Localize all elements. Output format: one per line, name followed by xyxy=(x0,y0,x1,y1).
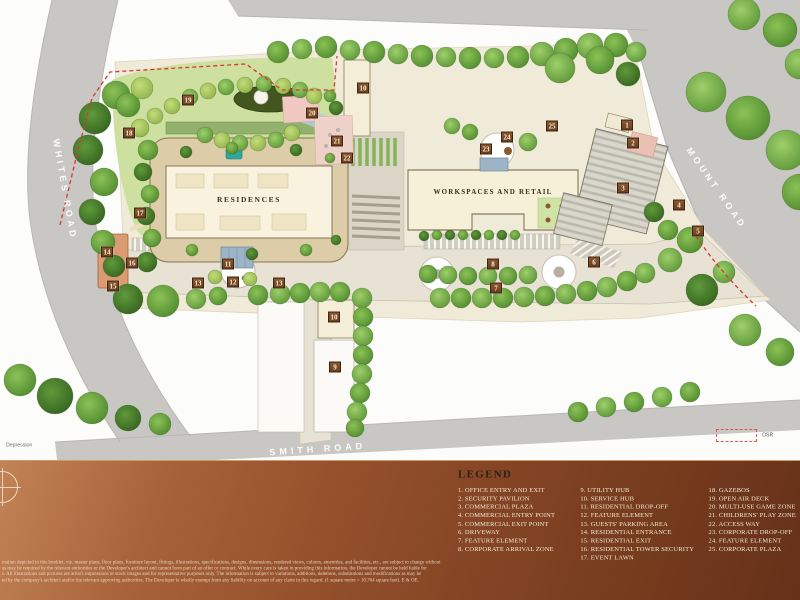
map-marker-13: 13 xyxy=(273,278,285,289)
tree-icon xyxy=(484,48,504,68)
depression-label: Depression xyxy=(6,442,32,448)
tree-icon xyxy=(90,168,118,196)
tree-icon xyxy=(596,397,616,417)
map-marker-16: 16 xyxy=(126,258,138,269)
map-marker-14: 14 xyxy=(101,247,113,258)
tree-icon xyxy=(586,46,614,74)
tree-icon xyxy=(284,125,300,141)
tree-icon xyxy=(726,96,770,140)
tree-icon xyxy=(115,405,141,431)
map-marker-10: 10 xyxy=(357,83,369,94)
tree-icon xyxy=(680,382,700,402)
tree-icon xyxy=(419,231,429,241)
map-marker-23: 23 xyxy=(480,144,492,155)
legend-item: 8. CORPORATE ARRIVAL ZONE xyxy=(458,545,580,553)
tree-icon xyxy=(37,378,73,414)
legend-column-3: 18. GAZEBOS19. OPEN AIR DECK20. MULTI-US… xyxy=(709,486,797,562)
legend-item: 16. RESIDENTIAL TOWER SECURITY xyxy=(580,545,708,553)
map-marker-2: 2 xyxy=(627,138,639,149)
osr-label: OSR xyxy=(762,432,773,438)
tree-icon xyxy=(340,40,360,60)
tree-icon xyxy=(658,248,682,272)
tree-icon xyxy=(79,199,105,225)
tree-icon xyxy=(444,118,460,134)
map-marker-11: 11 xyxy=(222,259,234,270)
tree-icon xyxy=(519,266,537,284)
legend-column-2: 9. UTILITY HUB10. SERVICE HUB11. RESIDEN… xyxy=(580,486,708,562)
legend-item: 11. RESIDENTIAL DROP-OFF xyxy=(580,503,708,511)
tree-icon xyxy=(310,282,330,302)
tree-icon xyxy=(141,185,159,203)
tree-icon xyxy=(149,413,171,435)
tree-icon xyxy=(430,288,450,308)
tree-icon xyxy=(324,90,336,102)
legend-item: 12. FEATURE ELEMENT xyxy=(580,512,708,520)
tree-icon xyxy=(218,79,234,95)
tree-icon xyxy=(432,230,442,240)
tree-icon xyxy=(658,220,678,240)
map-marker-22: 22 xyxy=(341,153,353,164)
master-plan-map: WHITES ROAD MOUNT ROAD SMITH ROAD RESIDE… xyxy=(0,0,800,460)
tree-icon xyxy=(617,271,637,291)
tree-icon xyxy=(462,124,478,140)
legend-item: 19. OPEN AIR DECK xyxy=(709,495,797,503)
tree-icon xyxy=(497,230,507,240)
legend-item: 9. UTILITY HUB xyxy=(580,486,708,494)
tree-icon xyxy=(729,314,761,346)
tree-icon xyxy=(226,142,238,154)
tree-icon xyxy=(535,286,555,306)
tree-icon xyxy=(197,127,213,143)
map-marker-20: 20 xyxy=(306,108,318,119)
tree-icon xyxy=(411,45,433,67)
tree-icon xyxy=(556,284,576,304)
tree-icon xyxy=(243,272,257,286)
tree-icon xyxy=(290,283,310,303)
tree-icon xyxy=(350,383,370,403)
legend-item: 5. COMMERCIAL EXIT POINT xyxy=(458,520,580,528)
tree-icon xyxy=(616,62,640,86)
tree-icon xyxy=(451,288,471,308)
tree-icon xyxy=(268,132,284,148)
map-marker-8: 8 xyxy=(487,259,499,270)
tree-icon xyxy=(325,153,335,163)
tree-icon xyxy=(577,281,597,301)
legend-item: 3. COMMERCIAL PLAZA xyxy=(458,503,580,511)
tree-icon xyxy=(514,287,534,307)
map-marker-18: 18 xyxy=(123,128,135,139)
map-marker-1: 1 xyxy=(621,120,633,131)
map-marker-15: 15 xyxy=(107,281,119,292)
tree-icon xyxy=(353,326,373,346)
tree-icon xyxy=(439,266,457,284)
tree-icon xyxy=(4,364,36,396)
tree-icon xyxy=(484,230,494,240)
legend-item: 23. CORPORATE DROP-OFF xyxy=(709,528,797,536)
map-marker-10: 10 xyxy=(328,312,340,323)
map-marker-17: 17 xyxy=(134,208,146,219)
tree-icon xyxy=(445,230,455,240)
tree-icon xyxy=(686,72,726,112)
tree-icon xyxy=(300,244,312,256)
tree-icon xyxy=(388,44,408,64)
map-marker-7: 7 xyxy=(490,283,502,294)
map-marker-21: 21 xyxy=(331,136,343,147)
tree-icon xyxy=(346,419,364,437)
legend-item: 22. ACCESS WAY xyxy=(709,520,797,528)
tree-icon xyxy=(209,287,227,305)
tree-icon xyxy=(686,274,718,306)
map-marker-5: 5 xyxy=(692,226,704,237)
legend-band: LEGEND 1. OFFICE ENTRY AND EXIT2. SECURI… xyxy=(0,460,800,600)
tree-icon xyxy=(766,338,794,366)
tree-icon xyxy=(458,230,468,240)
osr-boundary-box xyxy=(716,429,757,442)
tree-icon xyxy=(419,265,437,283)
legend-item: 6. DRIVEWAY xyxy=(458,528,580,536)
tree-icon xyxy=(545,53,575,83)
legend: LEGEND 1. OFFICE ENTRY AND EXIT2. SECURI… xyxy=(458,469,796,562)
tree-icon xyxy=(352,288,372,308)
legend-column-1: 1. OFFICE ENTRY AND EXIT2. SECURITY PAVI… xyxy=(458,486,580,562)
legend-item: 18. GAZEBOS xyxy=(709,486,797,494)
map-marker-13: 13 xyxy=(192,278,204,289)
tree-icon xyxy=(652,387,672,407)
tree-icon xyxy=(256,76,272,92)
tree-icon xyxy=(507,46,529,68)
legend-item: 10. SERVICE HUB xyxy=(580,495,708,503)
tree-icon xyxy=(267,41,289,63)
master-plan-page: WHITES ROAD MOUNT ROAD SMITH ROAD RESIDE… xyxy=(0,0,800,600)
map-marker-25: 25 xyxy=(546,121,558,132)
map-marker-3: 3 xyxy=(617,183,629,194)
tree-icon xyxy=(208,270,222,284)
map-marker-4: 4 xyxy=(673,200,685,211)
tree-icon xyxy=(186,244,198,256)
tree-icon xyxy=(164,98,180,114)
legend-item: 20. MULTI-USE GAME ZONE xyxy=(709,503,797,511)
disclaimer-text: mation depicted in this booklet, viz. ma… xyxy=(2,559,800,583)
tree-icon xyxy=(459,267,477,285)
legend-item: 21. CHILDRENS' PLAY ZONE xyxy=(709,512,797,520)
tree-icon xyxy=(186,289,206,309)
tree-icon xyxy=(237,77,253,93)
tree-icon xyxy=(76,392,108,424)
tree-icon xyxy=(315,36,337,58)
tree-icon xyxy=(290,144,302,156)
tree-icon xyxy=(138,140,158,160)
tree-icon xyxy=(644,202,664,222)
tree-icon xyxy=(134,163,152,181)
map-marker-9: 9 xyxy=(329,362,341,373)
legend-item: 1. OFFICE ENTRY AND EXIT xyxy=(458,486,580,494)
tree-icon xyxy=(635,263,655,283)
tree-icon xyxy=(568,402,588,422)
legend-title: LEGEND xyxy=(458,469,796,481)
tree-icon xyxy=(624,392,644,412)
legend-item: 15. RESIDENTIAL EXIT xyxy=(580,537,708,545)
tree-icon xyxy=(137,252,157,272)
map-marker-12: 12 xyxy=(227,277,239,288)
map-marker-19: 19 xyxy=(182,95,194,106)
tree-icon xyxy=(363,41,385,63)
tree-icon xyxy=(331,235,341,245)
residences-label: RESIDENCES xyxy=(217,195,281,204)
disclaimer-line: ed by the company's architect and/or the… xyxy=(2,577,800,583)
legend-item: 25. CORPORATE PLAZA xyxy=(709,545,797,553)
legend-item: 2. SECURITY PAVILION xyxy=(458,495,580,503)
tree-icon xyxy=(143,229,161,247)
tree-icon xyxy=(471,230,481,240)
tree-icon xyxy=(352,364,372,384)
tree-icon xyxy=(353,307,373,327)
tree-icon xyxy=(180,146,192,158)
legend-item: 7. FEATURE ELEMENT xyxy=(458,537,580,545)
tree-icon xyxy=(292,39,312,59)
compass-rose-icon xyxy=(0,471,18,503)
legend-item: 14. RESIDENTIAL ENTRANCE xyxy=(580,528,708,536)
legend-item: 24. FEATURE ELEMENT xyxy=(709,537,797,545)
tree-icon xyxy=(131,77,153,99)
tree-icon xyxy=(330,282,350,302)
tree-icon xyxy=(200,83,216,99)
legend-item: 4. COMMERCIAL ENTRY POINT xyxy=(458,512,580,520)
tree-icon xyxy=(519,133,537,151)
tree-icon xyxy=(246,248,258,260)
tree-icon xyxy=(597,277,617,297)
tree-icon xyxy=(626,42,646,62)
map-marker-24: 24 xyxy=(501,132,513,143)
tree-icon xyxy=(459,47,481,69)
tree-icon xyxy=(472,288,492,308)
tree-icon xyxy=(436,47,456,67)
tree-icon xyxy=(147,108,163,124)
tree-icon xyxy=(147,285,179,317)
tree-icon xyxy=(250,135,266,151)
legend-item: 13. GUESTS' PARKING AREA xyxy=(580,520,708,528)
map-graphic: WHITES ROAD MOUNT ROAD SMITH ROAD RESIDE… xyxy=(0,0,800,460)
map-marker-6: 6 xyxy=(588,257,600,268)
tree-icon xyxy=(329,101,343,115)
tree-icon xyxy=(510,230,520,240)
workspaces-label: WORKSPACES AND RETAIL xyxy=(433,188,552,196)
tree-icon xyxy=(353,345,373,365)
tree-icon xyxy=(763,13,797,47)
tree-icon xyxy=(248,285,268,305)
tree-icon xyxy=(728,0,760,30)
